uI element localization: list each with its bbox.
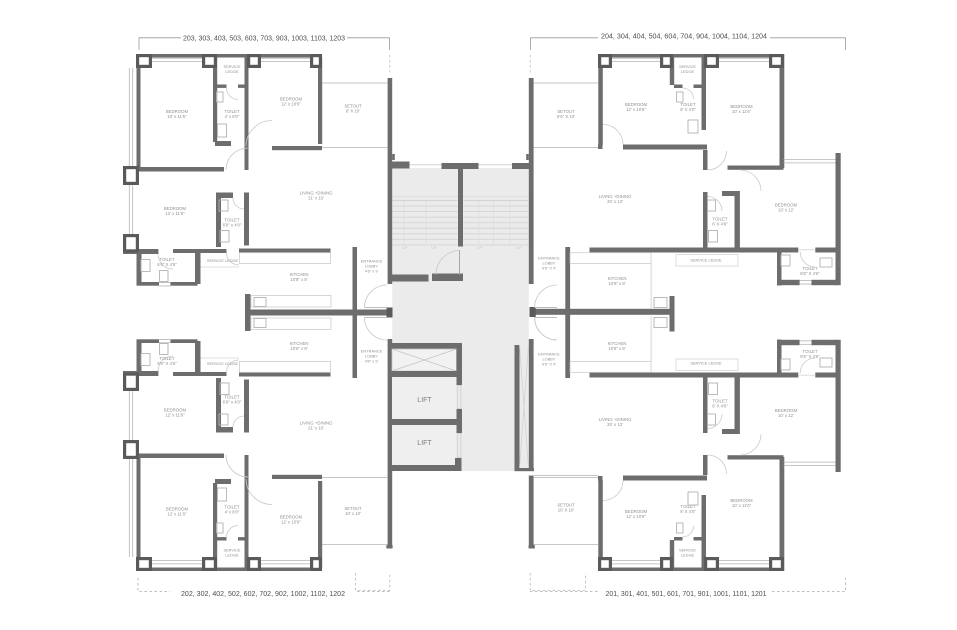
svg-text:12' x 10'6": 12' x 10'6" xyxy=(281,520,301,525)
svg-text:4' x 8'0": 4' x 8'0" xyxy=(225,114,240,119)
svg-text:8'6" X 4'6": 8'6" X 4'6" xyxy=(800,271,820,276)
svg-text:10'8" x 8': 10'8" x 8' xyxy=(608,281,625,286)
svg-text:10'8" x 8': 10'8" x 8' xyxy=(290,277,307,282)
svg-text:LEDGE: LEDGE xyxy=(681,553,695,558)
svg-text:UP: UP xyxy=(402,245,408,250)
svg-text:SERVICE LEDGE: SERVICE LEDGE xyxy=(690,361,722,366)
svg-text:4' x 8'0": 4' x 8'0" xyxy=(225,510,240,515)
svg-text:8' X 4'0": 8' X 4'0" xyxy=(680,509,696,514)
svg-text:21' x 10': 21' x 10' xyxy=(308,426,324,431)
svg-text:204, 304, 404, 504, 604, 704,: 204, 304, 404, 504, 604, 704, 904, 1004,… xyxy=(601,32,767,41)
svg-text:12' x 11'0": 12' x 11'0" xyxy=(167,512,187,517)
svg-text:10' x 12': 10' x 12' xyxy=(778,413,794,418)
svg-text:4'6" x 9': 4'6" x 9' xyxy=(365,359,379,364)
svg-text:12' x 11'6": 12' x 11'6" xyxy=(165,211,185,216)
svg-text:6'9" x 4'0": 6'9" x 4'0" xyxy=(223,400,242,405)
svg-text:12' x 11'6": 12' x 11'6" xyxy=(165,413,185,418)
svg-text:21' x 10': 21' x 10' xyxy=(308,196,324,201)
svg-text:8'6" X 4'6": 8'6" X 4'6" xyxy=(800,354,820,359)
svg-text:UP: UP xyxy=(516,245,522,250)
svg-text:LEDGE: LEDGE xyxy=(225,69,239,74)
svg-text:10' x 10': 10' x 10' xyxy=(345,511,361,516)
svg-text:6'9" x 4'0": 6'9" x 4'0" xyxy=(223,223,242,228)
svg-text:202, 302, 402, 502, 602, 702,: 202, 302, 402, 502, 602, 702, 902, 1002,… xyxy=(181,589,345,598)
svg-text:9'6" X 9': 9'6" X 9' xyxy=(542,362,556,367)
svg-text:12' x 10'6": 12' x 10'6" xyxy=(626,514,646,519)
svg-text:UP: UP xyxy=(431,245,437,250)
svg-text:20' x 13': 20' x 13' xyxy=(607,422,623,427)
svg-text:10' x 11'6": 10' x 11'6" xyxy=(732,109,752,114)
svg-text:UP: UP xyxy=(477,245,483,250)
svg-text:6'6" X 4'6": 6'6" X 4'6" xyxy=(157,361,177,366)
svg-text:10' X 10': 10' X 10' xyxy=(558,508,575,513)
svg-text:LEDGE: LEDGE xyxy=(225,553,239,558)
svg-text:10' x 11'6": 10' x 11'6" xyxy=(167,114,187,119)
svg-text:201, 301, 401, 501, 601, 701,: 201, 301, 401, 501, 601, 701, 901, 1001,… xyxy=(606,589,767,598)
svg-text:8' X 10': 8' X 10' xyxy=(346,109,360,114)
svg-text:10' x 11'6": 10' x 11'6" xyxy=(732,503,752,508)
svg-text:SERVICE LEDGE: SERVICE LEDGE xyxy=(207,258,239,263)
svg-text:6' X 4'6": 6' X 4'6" xyxy=(712,222,728,227)
svg-text:4'6" x 9': 4'6" x 9' xyxy=(365,269,379,274)
svg-text:10'8" x 8': 10'8" x 8' xyxy=(608,346,625,351)
svg-text:SERVICE LEDGE: SERVICE LEDGE xyxy=(690,258,722,263)
svg-text:203, 303, 403, 503, 603, 703,: 203, 303, 403, 503, 603, 703, 903, 1003,… xyxy=(183,34,345,43)
svg-text:12' x 10'6": 12' x 10'6" xyxy=(626,107,646,112)
svg-text:20' x 13': 20' x 13' xyxy=(607,199,623,204)
svg-text:12' x 10'6": 12' x 10'6" xyxy=(281,102,301,107)
svg-text:8' X 4'0": 8' X 4'0" xyxy=(680,107,696,112)
svg-text:LIFT: LIFT xyxy=(417,440,432,447)
svg-text:LEDGE: LEDGE xyxy=(681,69,695,74)
svg-text:9'6" X 9': 9'6" X 9' xyxy=(542,266,556,271)
svg-text:LIFT: LIFT xyxy=(417,397,432,404)
svg-text:6'6" X 4'6": 6'6" X 4'6" xyxy=(157,262,177,267)
svg-text:10' x 12': 10' x 12' xyxy=(778,208,794,213)
svg-text:5'6" X 10': 5'6" X 10' xyxy=(557,114,575,119)
svg-text:6' X 4'6": 6' X 4'6" xyxy=(712,404,728,409)
svg-text:SERVICE LEDGE: SERVICE LEDGE xyxy=(207,361,239,366)
svg-text:10'8" x 8': 10'8" x 8' xyxy=(290,346,307,351)
